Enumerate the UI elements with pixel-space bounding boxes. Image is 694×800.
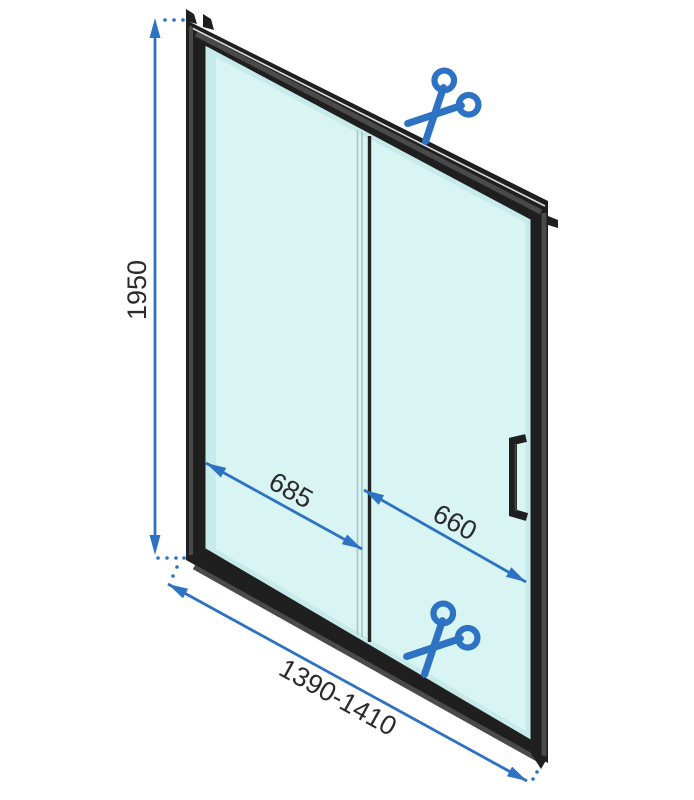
glass-left-edge-shade: [208, 50, 216, 552]
diagram-canvas: 1950 685 660 1390-1410: [0, 0, 694, 800]
shower-door-diagram: 1950 685 660 1390-1410: [0, 0, 694, 800]
height-dimension-label: 1950: [122, 260, 152, 320]
